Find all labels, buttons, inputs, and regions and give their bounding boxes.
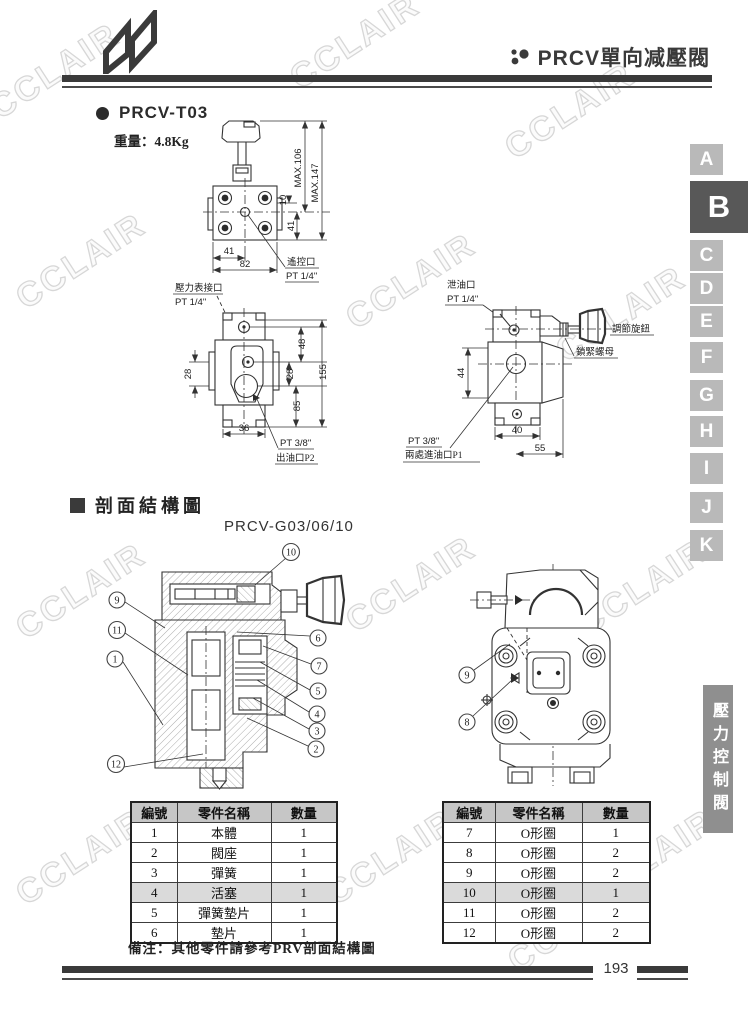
remote-port-label: 遙控口 — [287, 256, 316, 268]
brand-logo — [92, 10, 174, 74]
index-tab-a: A — [690, 144, 723, 175]
col-header-name: 零件名稱 — [177, 802, 271, 823]
index-tab-f: F — [690, 342, 723, 373]
dim-28-right: 28 — [285, 369, 296, 380]
part-name: O形圈 — [495, 823, 582, 843]
part-no: 3 — [131, 863, 177, 883]
table-row: 2閥座1 — [131, 843, 337, 863]
part-no: 7 — [443, 823, 495, 843]
part-qty: 2 — [582, 923, 650, 944]
adjust-knob-label: 調節旋鈕 — [612, 323, 651, 335]
part-name: 活塞 — [177, 883, 271, 903]
part-qty: 1 — [271, 863, 337, 883]
section-title-text: 剖面結構圖 — [95, 492, 205, 518]
table-row: 9O形圈2 — [443, 863, 650, 883]
part-qty: 1 — [271, 843, 337, 863]
parts-table-left: 編號 零件名稱 數量 1本體1 2閥座1 3彈簧1 4活塞1 5彈簧墊片1 6墊… — [130, 801, 338, 944]
footer-rule-thick-right — [637, 966, 688, 973]
index-tab-i: I — [690, 453, 723, 484]
callout-1: 1 — [113, 655, 118, 666]
part-no: 9 — [443, 863, 495, 883]
table-row: 12O形圈2 — [443, 923, 650, 944]
part-name: 本體 — [177, 823, 271, 843]
table-row: 10O形圈1 — [443, 883, 650, 903]
dim-55: 55 — [535, 443, 546, 454]
category-tab-pressure-control: 壓力控制閥 — [703, 685, 733, 833]
parts-table-right: 編號 零件名稱 數量 7O形圈1 8O形圈2 9O形圈2 10O形圈1 11O形… — [442, 801, 651, 944]
part-qty: 1 — [271, 903, 337, 923]
weight-label: 重量：4.8Kg — [114, 130, 189, 150]
part-no: 2 — [131, 843, 177, 863]
callout-10: 10 — [286, 548, 296, 559]
table-header-row: 編號 零件名稱 數量 — [443, 802, 650, 823]
page-number: 193 — [597, 960, 635, 977]
part-no: 1 — [131, 823, 177, 843]
watermark: CCLAIR — [498, 55, 642, 167]
drain-port-size: PT 1/4" — [447, 294, 478, 305]
table-row: 8O形圈2 — [443, 843, 650, 863]
outlet-port-size: PT 3/8" — [280, 438, 311, 449]
locknut-label: 鎖緊螺母 — [576, 346, 614, 358]
callout-6: 6 — [316, 634, 321, 645]
index-tab-c: C — [690, 240, 723, 271]
brand-dots-icon — [509, 46, 531, 68]
part-qty: 2 — [582, 843, 650, 863]
part-name: O形圈 — [495, 863, 582, 883]
callout-9: 9 — [115, 596, 120, 607]
header-rule-thin — [62, 86, 712, 88]
watermark: CCLAIR — [283, 0, 427, 98]
footer-rule-thick — [62, 966, 593, 973]
bullet-icon — [96, 107, 109, 120]
part-no: 12 — [443, 923, 495, 944]
table-header-row: 編號 零件名稱 數量 — [131, 802, 337, 823]
part-no: 4 — [131, 883, 177, 903]
index-tab-g: G — [690, 380, 723, 411]
table-row: 1本體1 — [131, 823, 337, 843]
dim-85: 85 — [292, 401, 303, 412]
dim-max106: MAX.106 — [293, 148, 304, 187]
dim-max147: MAX.147 — [310, 163, 321, 202]
page-title-text: PRCV單向减壓閥 — [538, 42, 710, 72]
cutaway-section-drawing: 10 9 11 1 12 6 7 5 4 3 2 — [95, 540, 355, 790]
part-name: 彈簧墊片 — [177, 903, 271, 923]
index-tab-d: D — [690, 273, 723, 304]
part-qty: 1 — [582, 883, 650, 903]
part-no: 5 — [131, 903, 177, 923]
bottom-view-drawing: 9 8 — [440, 560, 640, 788]
dim-28-left: 28 — [183, 369, 194, 380]
t03-top-view-drawing: MAX.106 MAX.147 10 41 41 82 遙控口 PT 1/4" — [185, 108, 400, 288]
gauge-port-size: PT 1/4" — [175, 297, 206, 308]
part-name: 彈簧 — [177, 863, 271, 883]
col-header-qty: 數量 — [271, 802, 337, 823]
callout-2: 2 — [314, 745, 319, 756]
square-bullet-icon — [70, 498, 85, 513]
t03-side-view-drawing: 泄油口 PT 1/4" 調節旋鈕 鎖緊螺母 44 40 — [400, 278, 665, 473]
callout-12: 12 — [111, 760, 121, 771]
dim-36: 36 — [239, 423, 250, 434]
dim-41-bottom: 41 — [224, 246, 235, 257]
index-tab-e: E — [690, 306, 723, 337]
part-qty: 1 — [271, 823, 337, 843]
dim-41-side: 41 — [286, 221, 297, 232]
dim-155: 155 — [318, 364, 329, 380]
header-rule-thick — [62, 75, 712, 82]
col-header-no: 編號 — [131, 802, 177, 823]
footer-rule-thin-right — [637, 978, 688, 980]
callout-4: 4 — [315, 710, 320, 721]
part-qty: 2 — [582, 903, 650, 923]
callout-8: 8 — [465, 718, 470, 729]
table-row: 5彈簧墊片1 — [131, 903, 337, 923]
callout-9: 9 — [465, 671, 470, 682]
footer-rule-thin — [62, 978, 593, 980]
part-no: 11 — [443, 903, 495, 923]
callout-7: 7 — [317, 662, 322, 673]
note-text: 備注：其他零件請參考PRV剖面結構圖 — [128, 937, 376, 957]
part-no: 8 — [443, 843, 495, 863]
part-qty: 1 — [582, 823, 650, 843]
dim-44: 44 — [456, 368, 467, 379]
index-tab-h: H — [690, 416, 723, 447]
page-title: PRCV單向减壓閥 — [509, 42, 710, 72]
callout-11: 11 — [112, 626, 122, 637]
col-header-qty: 數量 — [582, 802, 650, 823]
drain-port-label: 泄油口 — [447, 279, 476, 291]
watermark: CCLAIR — [9, 205, 153, 317]
section-title-structure: 剖面結構圖 — [70, 492, 205, 518]
table-row: 7O形圈1 — [443, 823, 650, 843]
index-tab-k: K — [690, 530, 723, 561]
index-tab-b-active: B — [690, 181, 748, 233]
t03-front-view-drawing: 壓力表接口 PT 1/4" 28 48 28 85 155 — [165, 280, 340, 475]
part-qty: 2 — [582, 863, 650, 883]
part-name: O形圈 — [495, 883, 582, 903]
gauge-port-label: 壓力表接口 — [175, 282, 223, 294]
part-name: 閥座 — [177, 843, 271, 863]
table-row: 4活塞1 — [131, 883, 337, 903]
dim-48: 48 — [297, 339, 308, 350]
catalog-page: CCLAIR CCLAIR CCLAIR CCLAIR CCLAIR CCLAI… — [0, 0, 750, 1018]
model-code: PRCV-G03/06/10 — [224, 518, 354, 535]
part-name: O形圈 — [495, 903, 582, 923]
index-tab-j: J — [690, 492, 723, 523]
callout-balloons: 9 8 — [459, 667, 475, 730]
part-qty: 1 — [271, 883, 337, 903]
col-header-name: 零件名稱 — [495, 802, 582, 823]
dim-10: 10 — [278, 195, 289, 206]
inlet-port-label: 兩處進油口P1 — [405, 449, 463, 461]
inlet-port-size: PT 3/8" — [408, 436, 439, 447]
callout-3: 3 — [315, 727, 320, 738]
dim-40: 40 — [512, 425, 523, 436]
dim-82: 82 — [240, 259, 251, 270]
part-no: 10 — [443, 883, 495, 903]
table-row: 11O形圈2 — [443, 903, 650, 923]
part-name: O形圈 — [495, 923, 582, 944]
table-row: 3彈簧1 — [131, 863, 337, 883]
outlet-port-label: 出油口P2 — [276, 452, 315, 464]
callout-5: 5 — [316, 687, 321, 698]
col-header-no: 編號 — [443, 802, 495, 823]
part-name: O形圈 — [495, 843, 582, 863]
